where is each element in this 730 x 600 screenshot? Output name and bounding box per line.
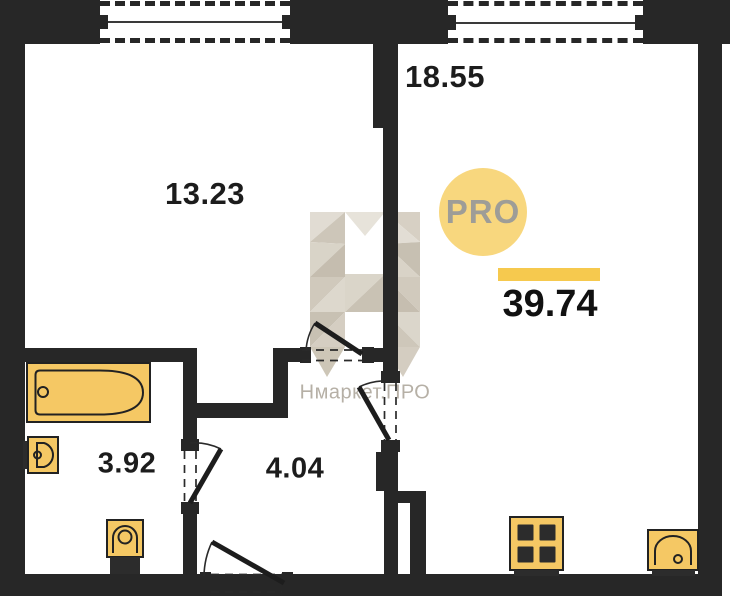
stove [510, 517, 563, 576]
room-area-label-3-92: 3.92 [98, 448, 156, 481]
pro-badge: PRO [439, 168, 527, 256]
door-hall-to-room [359, 381, 396, 440]
door-entrance [204, 542, 284, 592]
pro-badge-label: PRO [446, 193, 521, 231]
room-area-label-13-23: 13.23 [165, 176, 245, 212]
total-area-label: 39.74 [470, 283, 630, 326]
wash-basin [23, 437, 58, 473]
toilet [107, 520, 143, 574]
room-area-label-4-04: 4.04 [266, 453, 324, 486]
total-area-underline [498, 268, 600, 281]
floor-plan: Нмаркет.ПРО [0, 0, 730, 600]
kitchen-sink [648, 530, 698, 576]
bathtub [27, 363, 150, 422]
door-room-to-hall [302, 323, 362, 361]
door-bathroom [185, 443, 222, 503]
room-area-label-18-55: 18.55 [405, 59, 485, 95]
